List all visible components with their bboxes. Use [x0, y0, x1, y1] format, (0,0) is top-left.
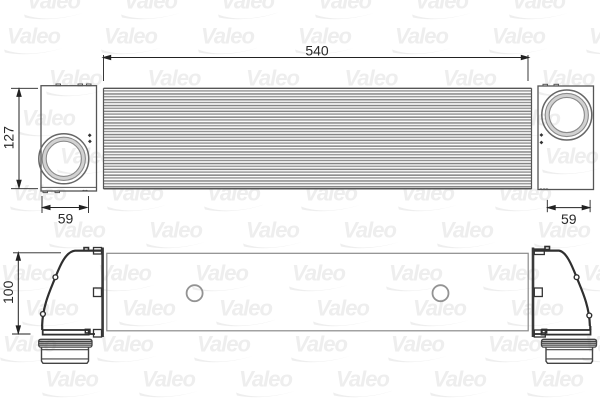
- svg-text:59: 59: [561, 211, 577, 227]
- svg-text:59: 59: [58, 211, 74, 227]
- svg-text:540: 540: [305, 43, 329, 59]
- svg-text:127: 127: [1, 126, 17, 150]
- svg-text:100: 100: [0, 280, 16, 304]
